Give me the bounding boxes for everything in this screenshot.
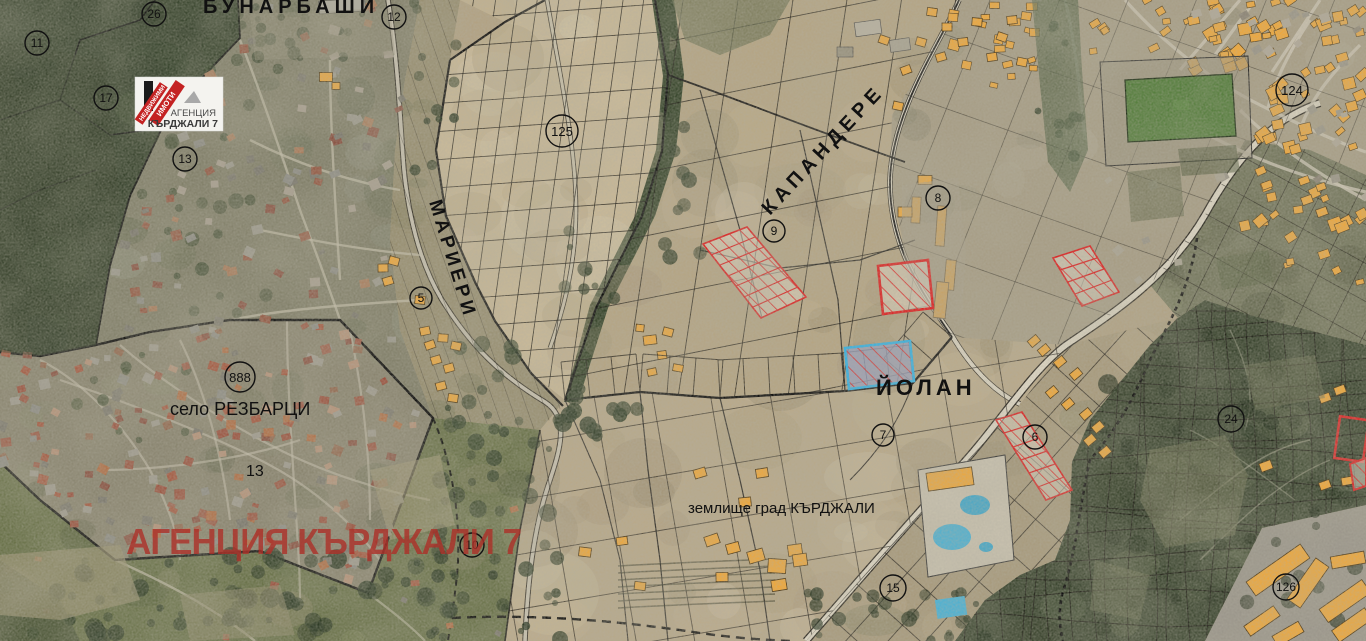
svg-text:ЙОЛАН: ЙОЛАН — [876, 375, 976, 400]
svg-text:землище град КЪРДЖАЛИ: землище град КЪРДЖАЛИ — [688, 500, 875, 517]
svg-text:126: 126 — [1276, 580, 1296, 594]
svg-text:888: 888 — [229, 370, 251, 385]
svg-text:11: 11 — [31, 36, 44, 50]
svg-text:5: 5 — [418, 291, 425, 305]
svg-text:17: 17 — [99, 91, 113, 105]
svg-text:село РЕЗБАРЦИ: село РЕЗБАРЦИ — [170, 399, 310, 419]
svg-text:7: 7 — [880, 428, 887, 442]
svg-text:24: 24 — [1224, 412, 1238, 426]
svg-text:124: 124 — [1281, 83, 1303, 98]
svg-text:13: 13 — [246, 463, 264, 480]
svg-text:БУНАРБАШИ: БУНАРБАШИ — [203, 0, 379, 18]
svg-text:12: 12 — [387, 10, 401, 24]
svg-text:13: 13 — [178, 152, 192, 166]
svg-text:АГЕНЦИЯ КЪРДЖАЛИ 7: АГЕНЦИЯ КЪРДЖАЛИ 7 — [126, 522, 521, 563]
svg-text:8: 8 — [935, 191, 942, 205]
svg-text:15: 15 — [886, 581, 900, 595]
svg-text:9: 9 — [771, 224, 778, 238]
svg-text:125: 125 — [551, 124, 573, 139]
svg-text:6: 6 — [1032, 430, 1039, 444]
svg-text:КЪРДЖАЛИ 7: КЪРДЖАЛИ 7 — [148, 118, 218, 130]
svg-text:26: 26 — [147, 7, 161, 21]
